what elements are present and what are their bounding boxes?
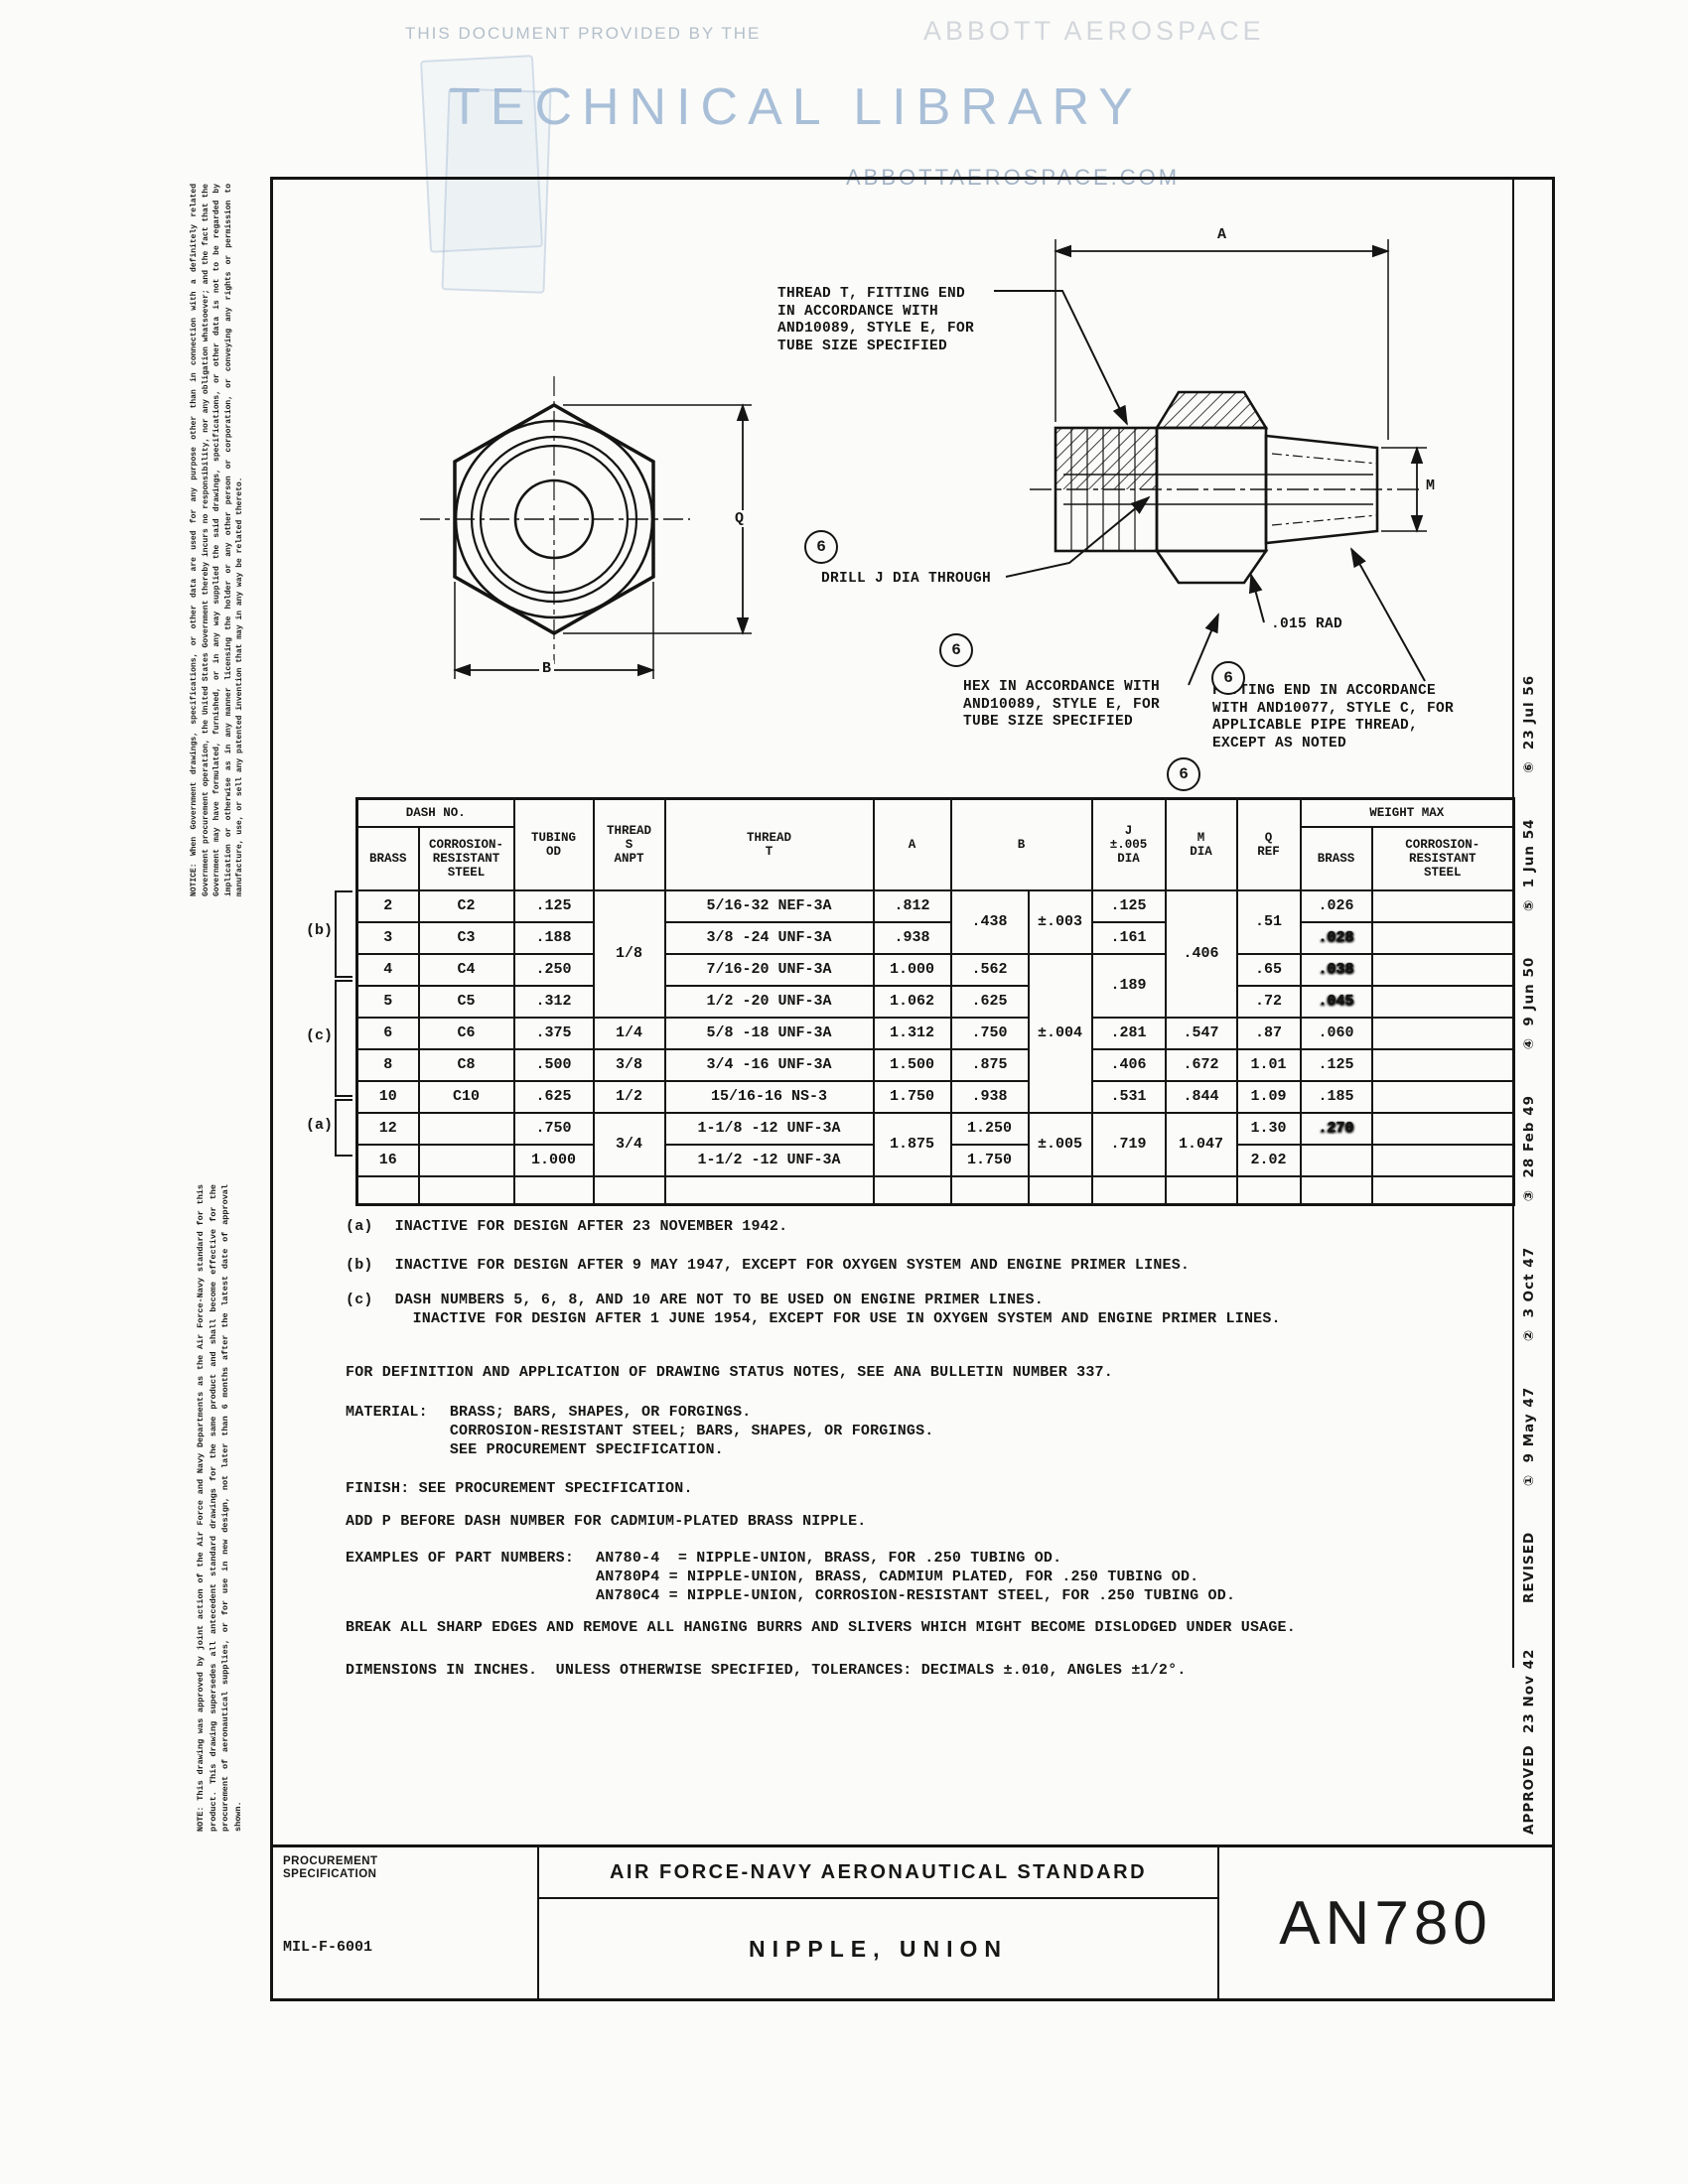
- cell: 3/8: [594, 1049, 665, 1081]
- table-row: 6 C6 .375 1/4 5/8 -18 UNF-3A 1.312 .750 …: [357, 1018, 1514, 1049]
- cell: .406: [1166, 890, 1237, 1018]
- cell: .625: [514, 1081, 594, 1113]
- note-finish-text: FINISH: SEE PROCUREMENT SPECIFICATION.: [346, 1479, 693, 1498]
- header-q: Q REF: [1237, 799, 1301, 890]
- cell: 5/16-32 NEF-3A: [665, 890, 874, 922]
- table-row: 12 .750 3/4 1-1/8 -12 UNF-3A 1.875 1.250…: [357, 1113, 1514, 1145]
- cell: ±.004: [1029, 954, 1092, 1113]
- dimension-table: DASH NO. TUBING OD THREAD S ANPT THREAD …: [355, 797, 1515, 1206]
- cell: .750: [514, 1113, 594, 1145]
- note-dimensions-text: DIMENSIONS IN INCHES. UNLESS OTHERWISE S…: [346, 1661, 1187, 1680]
- callout-hex: HEX IN ACCORDANCE WITH AND10089, STYLE E…: [963, 679, 1160, 732]
- standard-title-cell: AIR FORCE-NAVY AERONAUTICAL STANDARD NIP…: [539, 1847, 1219, 1998]
- cell: [1372, 1049, 1514, 1081]
- cell: .125: [1301, 1049, 1372, 1081]
- cell: 4: [357, 954, 419, 986]
- cell: [1372, 986, 1514, 1018]
- procurement-spec-label: PROCUREMENT SPECIFICATION: [283, 1855, 378, 1881]
- dim-label-q: Q: [732, 510, 747, 527]
- cell: 2: [357, 890, 419, 922]
- cell: 8: [357, 1049, 419, 1081]
- note-b-text: INACTIVE FOR DESIGN AFTER 9 MAY 1947, EX…: [395, 1256, 1191, 1275]
- cell: .060: [1301, 1018, 1372, 1049]
- table-row-blank: [357, 1176, 1514, 1205]
- note-a-label: (a): [346, 1217, 373, 1236]
- note-balloon-6: 6: [939, 633, 973, 667]
- table-row: 5 C5 .312 1/2 -20 UNF-3A 1.062 .625 .72 …: [357, 986, 1514, 1018]
- watermark-library-text: TECHNICAL LIBRARY: [449, 77, 1143, 137]
- cell: 1.312: [874, 1018, 951, 1049]
- cell: C10: [419, 1081, 514, 1113]
- note-material-line1: BRASS; BARS, SHAPES, OR FORGINGS.: [450, 1403, 934, 1422]
- note-deburr: BREAK ALL SHARP EDGES AND REMOVE ALL HAN…: [346, 1618, 1296, 1637]
- header-crs: CORROSION- RESISTANT STEEL: [419, 827, 514, 890]
- cell: [1301, 1145, 1372, 1176]
- note-c-line1: DASH NUMBERS 5, 6, 8, AND 10 ARE NOT TO …: [395, 1291, 1281, 1309]
- cell: .375: [514, 1018, 594, 1049]
- table-row: 4 C4 .250 7/16-20 UNF-3A 1.000 .562 ±.00…: [357, 954, 1514, 986]
- header-tubing-od: TUBING OD: [514, 799, 594, 890]
- bracket-a: [335, 1099, 352, 1157]
- cell: [419, 1145, 514, 1176]
- cell: .672: [1166, 1049, 1237, 1081]
- cell: C2: [419, 890, 514, 922]
- note-deburr-text: BREAK ALL SHARP EDGES AND REMOVE ALL HAN…: [346, 1618, 1296, 1637]
- cell: .547: [1166, 1018, 1237, 1049]
- table-row: 2 C2 .125 1/8 5/16-32 NEF-3A .812 .438 ±…: [357, 890, 1514, 922]
- cell: ±.005: [1029, 1113, 1092, 1176]
- dim-label-b: B: [539, 660, 554, 677]
- cell: .65: [1237, 954, 1301, 986]
- cell: .125: [514, 890, 594, 922]
- cell: .72: [1237, 986, 1301, 1018]
- bracket-b: [335, 890, 352, 978]
- dim-label-a: A: [1214, 226, 1229, 243]
- cell: 3/8 -24 UNF-3A: [665, 922, 874, 954]
- table-row: 8 C8 .500 3/8 3/4 -16 UNF-3A 1.500 .875 …: [357, 1049, 1514, 1081]
- note-examples: EXAMPLES OF PART NUMBERS: AN780-4 = NIPP…: [346, 1549, 1235, 1605]
- cell: 5: [357, 986, 419, 1018]
- watermark-brand-text: ABBOTT AEROSPACE: [923, 16, 1265, 47]
- cell: [1372, 1113, 1514, 1145]
- cell: C6: [419, 1018, 514, 1049]
- cell: C3: [419, 922, 514, 954]
- cell: 1.875: [874, 1113, 951, 1176]
- cell: .189: [1092, 954, 1166, 1018]
- note-balloon-6: 6: [1167, 757, 1200, 791]
- cell: .026: [1301, 890, 1372, 922]
- cell: 3/4: [594, 1113, 665, 1176]
- cell: .625: [951, 986, 1029, 1018]
- cell: .719: [1092, 1113, 1166, 1176]
- cell: 7/16-20 UNF-3A: [665, 954, 874, 986]
- cell: .406: [1092, 1049, 1166, 1081]
- cell: .185: [1301, 1081, 1372, 1113]
- cell: 1.750: [951, 1145, 1029, 1176]
- cell: .500: [514, 1049, 594, 1081]
- cell: [419, 1113, 514, 1145]
- cell: 5/8 -18 UNF-3A: [665, 1018, 874, 1049]
- cell: .750: [951, 1018, 1029, 1049]
- cell: 1/4: [594, 1018, 665, 1049]
- note-finish: FINISH: SEE PROCUREMENT SPECIFICATION.: [346, 1479, 693, 1498]
- cell: .038: [1301, 954, 1372, 986]
- cell: 1.01: [1237, 1049, 1301, 1081]
- watermark-provided-text: THIS DOCUMENT PROVIDED BY THE: [405, 24, 761, 44]
- table-row: 3 C3 .188 3/8 -24 UNF-3A .938 .161 .028: [357, 922, 1514, 954]
- cell: .028: [1301, 922, 1372, 954]
- note-c-line2: INACTIVE FOR DESIGN AFTER 1 JUNE 1954, E…: [413, 1309, 1281, 1328]
- cell: [1372, 1145, 1514, 1176]
- header-a: A: [874, 799, 951, 890]
- dim-label-m: M: [1423, 478, 1438, 494]
- cell: [1372, 922, 1514, 954]
- bracket-label-a: (a): [306, 1117, 333, 1134]
- note-status-text: FOR DEFINITION AND APPLICATION OF DRAWIN…: [346, 1363, 1113, 1382]
- procurement-spec-cell: PROCUREMENT SPECIFICATION MIL-F-6001: [273, 1847, 539, 1998]
- note-balloon-6: 6: [1211, 661, 1245, 695]
- cell: 1-1/2 -12 UNF-3A: [665, 1145, 874, 1176]
- standard-number-cell: AN780: [1219, 1847, 1552, 1998]
- cell: .438: [951, 890, 1029, 954]
- note-a-text: INACTIVE FOR DESIGN AFTER 23 NOVEMBER 19…: [395, 1217, 788, 1236]
- bracket-label-c: (c): [306, 1027, 333, 1044]
- cell: 12: [357, 1113, 419, 1145]
- header-dash-no: DASH NO.: [357, 799, 514, 827]
- note-b: (b) INACTIVE FOR DESIGN AFTER 9 MAY 1947…: [346, 1256, 1190, 1275]
- header-weight-max: WEIGHT MAX: [1301, 799, 1514, 827]
- procurement-spec-value: MIL-F-6001: [283, 1939, 372, 1956]
- cell: 16: [357, 1145, 419, 1176]
- table-row: 10 C10 .625 1/2 15/16-16 NS-3 1.750 .938…: [357, 1081, 1514, 1113]
- note-b-label: (b): [346, 1256, 373, 1275]
- header-thread-t: THREAD T: [665, 799, 874, 890]
- cell: .250: [514, 954, 594, 986]
- cell: 1.750: [874, 1081, 951, 1113]
- cell: 1.047: [1166, 1113, 1237, 1176]
- cell: ±.003: [1029, 890, 1092, 954]
- callout-015-rad: .015 RAD: [1271, 616, 1342, 634]
- note-c: (c) DASH NUMBERS 5, 6, 8, AND 10 ARE NOT…: [346, 1291, 1281, 1328]
- note-a: (a) INACTIVE FOR DESIGN AFTER 23 NOVEMBE…: [346, 1217, 787, 1236]
- note-material-line2: CORROSION-RESISTANT STEEL; BARS, SHAPES,…: [450, 1422, 934, 1440]
- drawing-sheet-border: THREAD T, FITTING END IN ACCORDANCE WITH…: [270, 177, 1555, 2001]
- cell: .938: [951, 1081, 1029, 1113]
- cell: 1.09: [1237, 1081, 1301, 1113]
- bracket-c: [335, 980, 352, 1097]
- header-brass: BRASS: [357, 827, 419, 890]
- cell: 6: [357, 1018, 419, 1049]
- note-example-2: AN780P4 = NIPPLE-UNION, BRASS, CADMIUM P…: [596, 1568, 1235, 1586]
- header-weight-crs: CORROSION- RESISTANT STEEL: [1372, 827, 1514, 890]
- note-material-line3: SEE PROCUREMENT SPECIFICATION.: [450, 1440, 934, 1459]
- cell: .812: [874, 890, 951, 922]
- note-dimensions: DIMENSIONS IN INCHES. UNLESS OTHERWISE S…: [346, 1661, 1187, 1680]
- cell: 1.500: [874, 1049, 951, 1081]
- cell: [1372, 1081, 1514, 1113]
- callout-fitting-end: FITTING END IN ACCORDANCE WITH AND10077,…: [1212, 683, 1454, 752]
- cell: 1/2: [594, 1081, 665, 1113]
- note-balloon-6: 6: [804, 530, 838, 564]
- cell: .312: [514, 986, 594, 1018]
- cell: [1372, 890, 1514, 922]
- cell: .51: [1237, 890, 1301, 954]
- standard-number: AN780: [1279, 1888, 1492, 1959]
- note-cadmium: ADD P BEFORE DASH NUMBER FOR CADMIUM-PLA…: [346, 1512, 866, 1531]
- note-c-label: (c): [346, 1291, 373, 1328]
- cell: [1372, 1018, 1514, 1049]
- cell: C5: [419, 986, 514, 1018]
- cell: .844: [1166, 1081, 1237, 1113]
- callout-thread-t: THREAD T, FITTING END IN ACCORDANCE WITH…: [777, 286, 974, 355]
- margin-government-disclaimer: NOTICE: When Government drawings, specif…: [189, 184, 246, 896]
- header-j: J ±.005 DIA: [1092, 799, 1166, 890]
- cell: .045: [1301, 986, 1372, 1018]
- cell: [1372, 954, 1514, 986]
- cell: .188: [514, 922, 594, 954]
- margin-approval-note: NOTE: This drawing was approved by joint…: [195, 1184, 244, 1832]
- cell: .875: [951, 1049, 1029, 1081]
- cell: .87: [1237, 1018, 1301, 1049]
- cell: 3: [357, 922, 419, 954]
- cell: .161: [1092, 922, 1166, 954]
- note-status: FOR DEFINITION AND APPLICATION OF DRAWIN…: [346, 1363, 1113, 1382]
- cell: C8: [419, 1049, 514, 1081]
- cell: .938: [874, 922, 951, 954]
- header-weight-brass: BRASS: [1301, 827, 1372, 890]
- callout-drill-j: DRILL J DIA THROUGH: [821, 571, 991, 589]
- cell: 15/16-16 NS-3: [665, 1081, 874, 1113]
- cell: 1.30: [1237, 1113, 1301, 1145]
- part-title: NIPPLE, UNION: [539, 1899, 1217, 1998]
- note-material: MATERIAL: BRASS; BARS, SHAPES, OR FORGIN…: [346, 1403, 934, 1459]
- note-example-1: AN780-4 = NIPPLE-UNION, BRASS, FOR .250 …: [596, 1549, 1235, 1568]
- cell: 1.000: [514, 1145, 594, 1176]
- bracket-label-b: (b): [306, 922, 333, 939]
- cell: .281: [1092, 1018, 1166, 1049]
- note-examples-label: EXAMPLES OF PART NUMBERS:: [346, 1549, 574, 1605]
- cell: .531: [1092, 1081, 1166, 1113]
- header-b: B: [951, 799, 1092, 890]
- cell: .125: [1092, 890, 1166, 922]
- cell: 1/2 -20 UNF-3A: [665, 986, 874, 1018]
- header-thread-s: THREAD S ANPT: [594, 799, 665, 890]
- header-m: M DIA: [1166, 799, 1237, 890]
- cell: 1.000: [874, 954, 951, 986]
- cell: 3/4 -16 UNF-3A: [665, 1049, 874, 1081]
- cell: 1.062: [874, 986, 951, 1018]
- cell: 1.250: [951, 1113, 1029, 1145]
- cell: C4: [419, 954, 514, 986]
- note-cadmium-text: ADD P BEFORE DASH NUMBER FOR CADMIUM-PLA…: [346, 1512, 866, 1531]
- cell: .270: [1301, 1113, 1372, 1145]
- standard-title: AIR FORCE-NAVY AERONAUTICAL STANDARD: [539, 1847, 1217, 1899]
- note-example-3: AN780C4 = NIPPLE-UNION, CORROSION-RESIST…: [596, 1586, 1235, 1605]
- title-block: PROCUREMENT SPECIFICATION MIL-F-6001 AIR…: [273, 1844, 1552, 1998]
- cell: .562: [951, 954, 1029, 986]
- cell: 1-1/8 -12 UNF-3A: [665, 1113, 874, 1145]
- note-material-label: MATERIAL:: [346, 1403, 428, 1459]
- cell: 2.02: [1237, 1145, 1301, 1176]
- cell: 1/8: [594, 890, 665, 1018]
- cell: 10: [357, 1081, 419, 1113]
